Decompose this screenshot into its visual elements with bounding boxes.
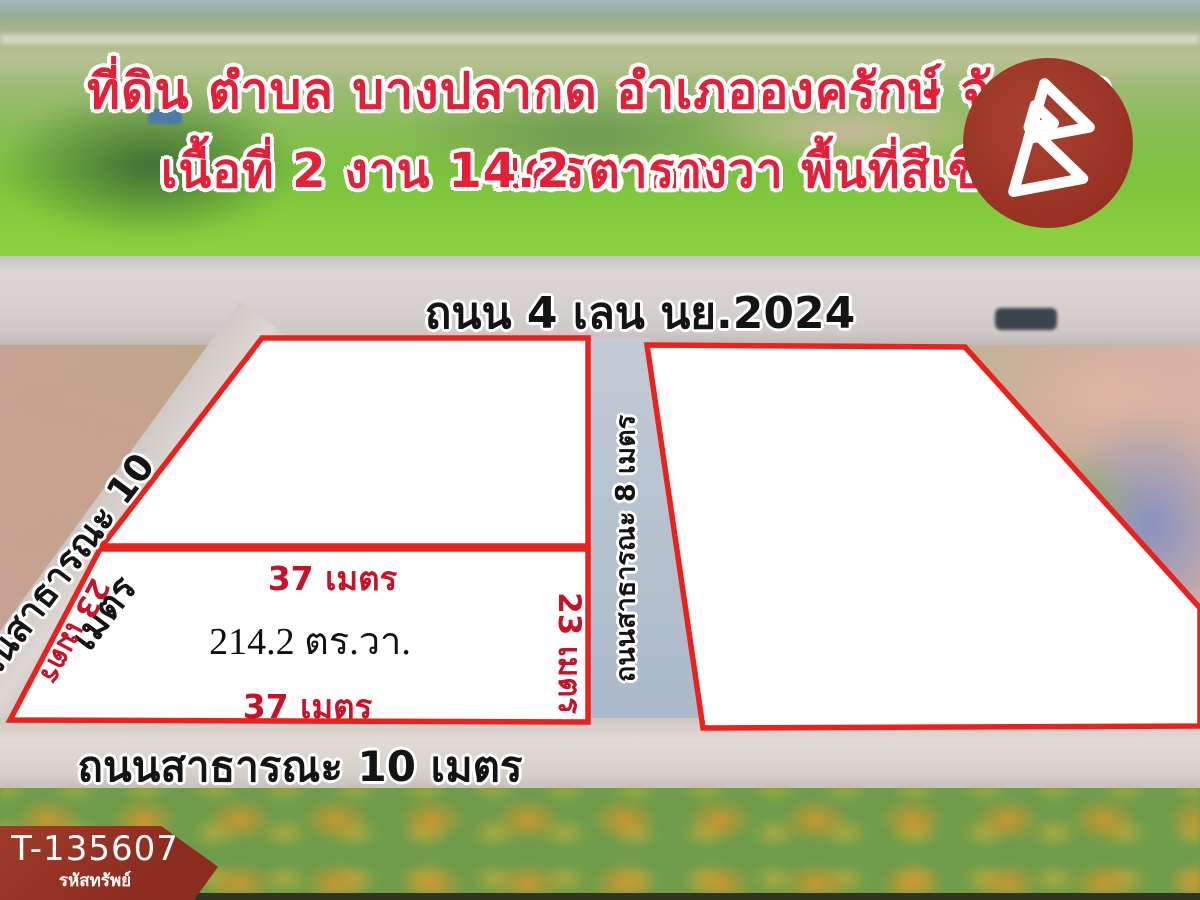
plot-right — [647, 345, 1200, 728]
land-listing-image: ที่ดิน ตำบล บางปลากด อำเภอองครักษ์ จังหว… — [0, 0, 1200, 900]
brand-logo — [963, 58, 1133, 228]
property-code: T-135607 — [0, 832, 190, 868]
center-road-label: ถนนสาธารณะ 8 เมตร — [604, 349, 647, 749]
plot-right-depth-label: 23 เมตร — [545, 573, 595, 733]
b-triangles-icon — [980, 67, 1115, 219]
bottom-road-label: ถนนสาธารณะ 10 เมตร — [25, 734, 575, 800]
property-code-caption: รหัสทรัพย์ — [0, 867, 190, 894]
plot-area-label: 214.2 ตร.วา. — [175, 610, 445, 671]
plot-top-width-label: 37 เมตร — [230, 552, 435, 605]
main-road-label: ถนน 4 เลน นย.2024 — [390, 278, 890, 348]
plot-bottom-width-label: 37 เมตร — [205, 680, 410, 733]
